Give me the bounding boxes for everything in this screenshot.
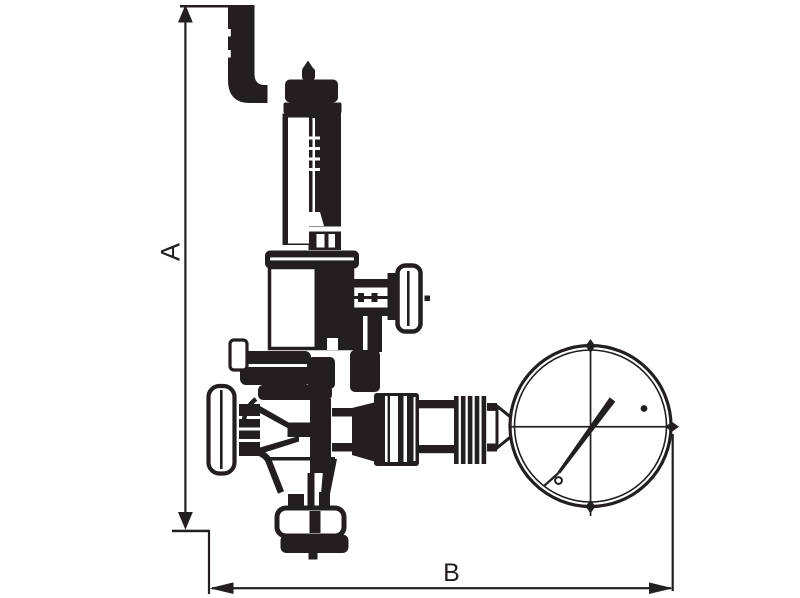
svg-text:A: A — [156, 243, 186, 261]
svg-text:B: B — [443, 559, 460, 587]
